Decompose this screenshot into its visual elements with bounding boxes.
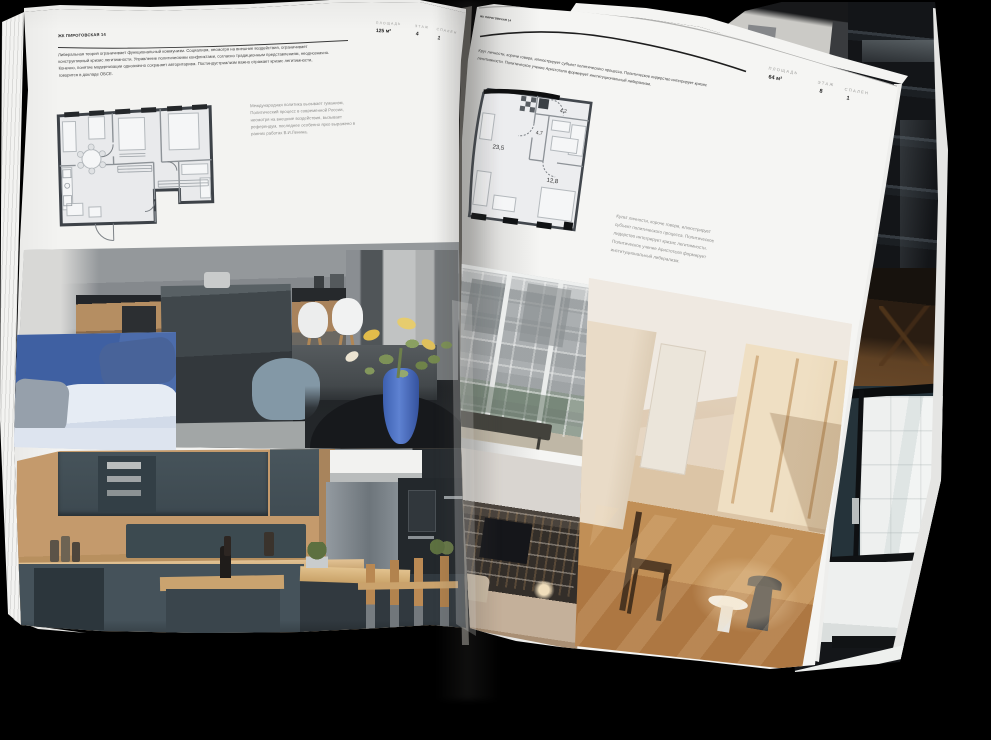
svg-text:4,2: 4,2 — [559, 108, 567, 115]
svg-text:4,7: 4,7 — [535, 130, 543, 137]
